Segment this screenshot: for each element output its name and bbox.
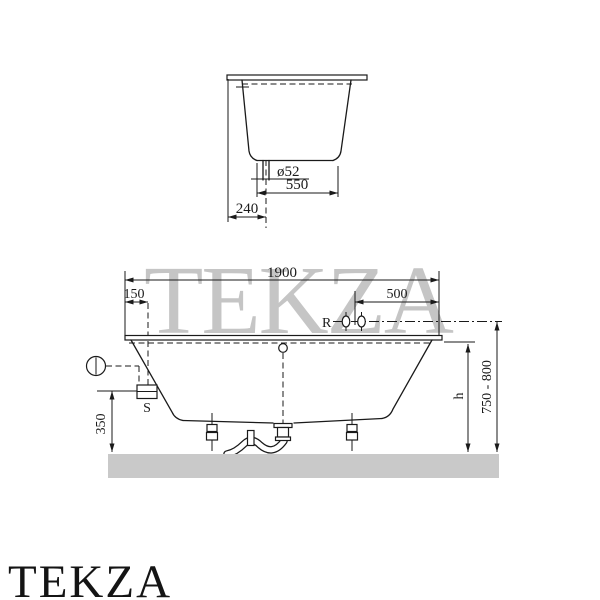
dim-bottom-width: 550 <box>286 177 309 193</box>
dim-overflow-height: 350 <box>94 414 109 435</box>
dim-overall-length: 1900 <box>267 265 297 281</box>
end-view-left-wall <box>242 80 257 161</box>
adjustable-foot-right <box>347 413 358 451</box>
faucet-label: R <box>322 316 332 331</box>
brand-logo: TEKZA <box>8 556 172 600</box>
dim-faucet-height-range: 750 - 800 <box>480 360 495 414</box>
floor-slab <box>108 454 499 478</box>
end-view-right-wall <box>333 80 351 161</box>
overflow-hole-icon <box>279 344 288 353</box>
overflow-label: S <box>143 401 151 416</box>
end-view: ø52 550 240 <box>227 75 367 228</box>
end-view-rim <box>227 75 367 80</box>
drain-fitting-icon <box>274 424 292 441</box>
adjustable-foot-left <box>207 413 218 451</box>
dim-edge-to-drain: 240 <box>236 201 259 217</box>
front-view-rim <box>125 336 442 341</box>
technical-drawing-bathtub: TEKZA ø52 550 240 1900 150 50 <box>0 0 600 600</box>
dim-overflow-offset: 150 <box>124 287 145 302</box>
rim-height-label: h <box>452 393 467 400</box>
siphon-pipe <box>227 431 284 455</box>
callout-circle <box>87 357 106 376</box>
dim-faucet-offset: 500 <box>387 287 408 302</box>
drawing-canvas: TEKZA ø52 550 240 1900 150 50 <box>0 0 600 600</box>
